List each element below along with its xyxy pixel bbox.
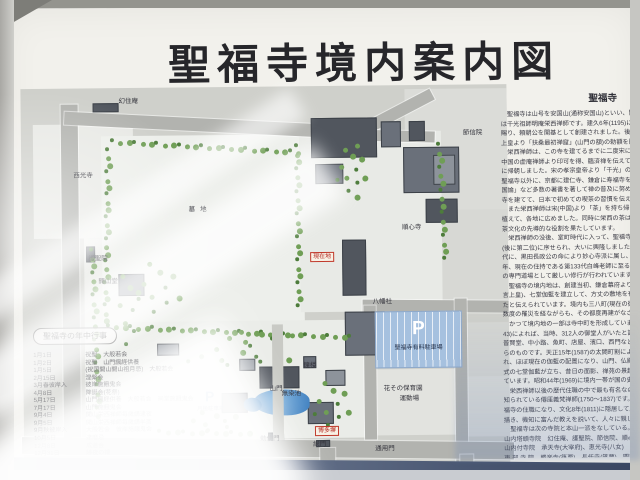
building (308, 402, 334, 424)
building (342, 240, 367, 296)
tree-icon (132, 139, 136, 143)
tree-icon (104, 236, 108, 240)
tree-icon (92, 302, 97, 307)
tree-icon (93, 308, 99, 314)
tree-icon (355, 180, 359, 184)
tree-icon (199, 143, 203, 147)
signboard-photo: 聖福寺境内案内図 P聖福寺有料駐車場P月極駐車場幻住庵西光寺節信院順心寺護聖院開… (0, 0, 640, 480)
tree-icon (295, 153, 300, 158)
tree-icon (296, 244, 301, 249)
tree-icon (346, 188, 350, 192)
tree-icon (149, 295, 154, 300)
building (325, 370, 345, 386)
tree-icon (141, 282, 146, 287)
tree-icon (436, 142, 440, 146)
tree-icon (221, 145, 225, 149)
parking-lot: P聖福寺有料駐車場 (375, 311, 463, 369)
map-label: 総門 (313, 442, 326, 449)
tree-icon (94, 347, 99, 352)
tree-icon (91, 279, 96, 284)
tree-icon (171, 273, 177, 279)
events-table-header: 聖福寺の年中行事 (33, 327, 117, 345)
map-label: 順心寺 (402, 225, 422, 232)
tree-icon (325, 333, 329, 337)
current-location-marker: 現在地 (310, 252, 334, 262)
tree-icon (117, 303, 122, 308)
tree-icon (294, 143, 298, 147)
building (409, 121, 425, 141)
tree-icon (354, 168, 358, 172)
event-name: 山門諷経供養 大般若会 祠堂施餓鬼会 (86, 397, 194, 406)
tree-icon (240, 349, 246, 355)
tree-icon (107, 163, 113, 169)
tree-icon (295, 280, 299, 284)
tree-icon (89, 247, 93, 251)
building (239, 359, 255, 371)
tree-icon (110, 138, 114, 142)
tree-icon (438, 187, 442, 191)
tree-icon (439, 158, 445, 164)
tree-icon (330, 388, 336, 394)
tree-icon (163, 286, 167, 290)
tree-icon (219, 358, 224, 363)
tree-icon (441, 220, 446, 225)
history-text-column: 聖福寺は山号を安国山(通称安国山)といい、開山は千光祖師明庵栄西禅師です。建久6… (501, 109, 640, 458)
tree-icon (122, 321, 127, 326)
tree-icon (225, 425, 229, 429)
tree-icon (243, 339, 248, 344)
tree-icon (141, 142, 146, 147)
tree-icon (163, 143, 168, 148)
tree-icon (177, 142, 181, 146)
tree-icon (158, 327, 163, 332)
event-name: 除夜の鐘 (86, 450, 110, 458)
tree-icon (185, 144, 190, 149)
tree-icon (354, 194, 360, 200)
tree-icon (337, 415, 341, 419)
tree-icon (105, 147, 109, 151)
tree-icon (176, 295, 182, 301)
tree-icon (274, 149, 279, 154)
tree-icon (127, 285, 133, 291)
tree-icon (294, 189, 298, 193)
tree-icon (103, 312, 108, 317)
map-label: 通用門 (375, 446, 395, 453)
map-label: 節信院 (463, 130, 483, 137)
tree-icon (105, 296, 111, 302)
tree-icon (157, 269, 163, 275)
map-label: 鐘楼 (303, 363, 316, 370)
tree-icon (341, 391, 347, 397)
tree-icon (92, 286, 98, 292)
map-label: 運動場 (400, 396, 420, 403)
map-label: 開山堂 (98, 279, 118, 286)
map-label: 西光寺 (73, 173, 93, 180)
tree-icon (294, 166, 298, 170)
building (381, 121, 401, 147)
tree-icon (104, 290, 109, 295)
tree-icon (180, 328, 185, 333)
map-parcel (101, 134, 305, 328)
signboard-panel: 聖福寺境内案内図 P聖福寺有料駐車場P月極駐車場幻住庵西光寺節信院順心寺護聖院開… (4, 3, 640, 480)
tree-icon (288, 148, 292, 152)
temple-approach-path (272, 324, 284, 440)
photo-top-edge (0, 0, 640, 8)
tree-icon (296, 267, 301, 272)
pond (244, 398, 262, 412)
tree-icon (104, 214, 108, 218)
tree-icon (442, 256, 446, 260)
tree-icon (297, 205, 303, 211)
map-label: 花その保育園 (384, 386, 423, 393)
tree-icon (442, 242, 447, 247)
tree-icon (105, 223, 110, 228)
tree-icon (298, 296, 304, 302)
event-name: (祝国開山開山祖月忌) 大般若会 (85, 367, 173, 375)
tree-icon (350, 154, 356, 160)
tree-icon (248, 344, 252, 348)
tree-icon (324, 410, 329, 415)
board-title: 聖福寺境内案内図 (104, 27, 625, 90)
events-table: 1月1日祝聖 大般若会1月2日祝聖 山門諷経供養1月5日(祝国開山開山祖月忌) … (33, 351, 219, 459)
map-label: 無染池 (282, 391, 302, 398)
tree-icon (297, 228, 303, 234)
history-line: 植えて、各地に広めました。同時に栄西の茶は日本 (502, 214, 640, 225)
tree-icon (437, 165, 441, 169)
map-label: 護聖院 (88, 256, 108, 263)
history-column-title: 聖福寺 (588, 90, 617, 104)
tree-icon (229, 430, 233, 434)
tree-icon (339, 165, 344, 170)
map-label: 幻住庵 (119, 99, 139, 106)
tree-icon (296, 303, 300, 307)
tree-icon (223, 419, 227, 423)
map-label: 勅使門 (260, 436, 280, 443)
tree-icon (105, 201, 110, 206)
tree-icon (92, 315, 96, 319)
tree-icon (335, 402, 339, 406)
tree-icon (215, 328, 219, 332)
photo-right-edge (630, 0, 640, 480)
tree-icon (344, 175, 349, 180)
map-label: 八幡社 (373, 299, 393, 306)
tree-icon (442, 226, 448, 232)
tree-icon (90, 270, 94, 274)
history-line: 東 部 寺 院 勝楽寺(篠栗)、長任寺(篠栗)、圓護寺(篠 (504, 452, 640, 458)
tree-icon (106, 185, 112, 191)
event-name: 大般若会 彼岸施餓鬼会 (86, 427, 152, 435)
tree-icon (238, 432, 243, 437)
tree-icon (322, 381, 327, 386)
map-label: 墓地 (189, 207, 212, 214)
parking-label: 聖福寺有料駐車場 (376, 342, 461, 352)
tree-icon (343, 147, 348, 152)
tree-icon (437, 151, 442, 156)
tree-icon (440, 181, 446, 187)
tree-icon (296, 182, 302, 188)
building (93, 103, 119, 112)
tree-icon (136, 327, 141, 332)
tree-icon (359, 157, 365, 163)
tree-icon (246, 331, 251, 336)
tree-icon (193, 327, 197, 331)
parking-icon: P (376, 318, 461, 341)
tree-icon (172, 326, 176, 330)
photo-left-edge (0, 0, 14, 480)
tree-icon (118, 141, 123, 146)
tree-icon (106, 179, 111, 184)
tree-icon (295, 257, 299, 261)
tree-icon (303, 332, 307, 336)
tree-icon (207, 146, 212, 151)
current-location-marker: 博多塀 (315, 426, 339, 436)
tree-icon (441, 233, 445, 237)
photo-bottom-edge (0, 470, 640, 480)
tree-icon (296, 221, 301, 226)
tree-icon (252, 148, 257, 153)
